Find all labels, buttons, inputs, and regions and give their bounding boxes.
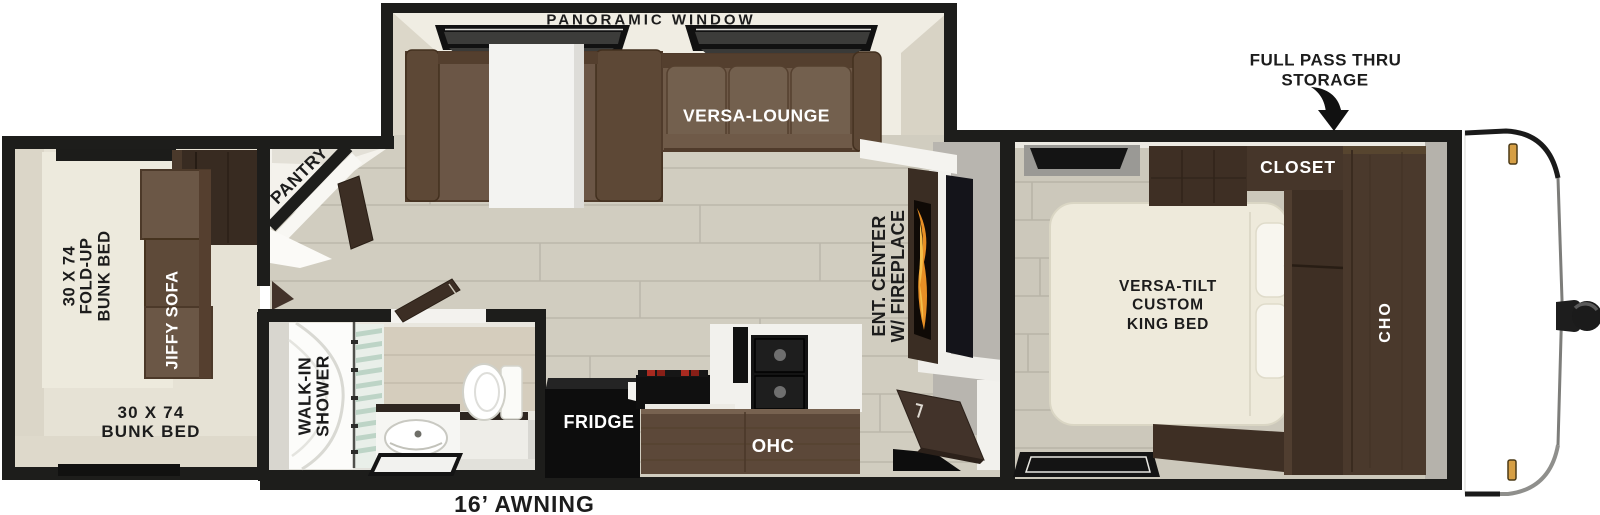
svg-text:BUNK BED: BUNK BED bbox=[101, 422, 200, 441]
svg-text:FULL PASS THRU: FULL PASS THRU bbox=[1250, 51, 1402, 70]
svg-text:PANORAMIC WINDOW: PANORAMIC WINDOW bbox=[546, 12, 755, 29]
svg-text:SHOWER: SHOWER bbox=[313, 355, 333, 437]
svg-text:WALK-IN: WALK-IN bbox=[295, 357, 315, 435]
svg-text:KING BED: KING BED bbox=[1127, 316, 1209, 333]
svg-text:FOLD-UP: FOLD-UP bbox=[77, 238, 95, 315]
svg-text:30 X 74: 30 X 74 bbox=[117, 403, 184, 422]
svg-text:16’ AWNING: 16’ AWNING bbox=[454, 491, 595, 515]
svg-text:BUNK BED: BUNK BED bbox=[95, 230, 113, 321]
svg-text:OHC: OHC bbox=[752, 435, 795, 456]
svg-text:VERSA-TILT: VERSA-TILT bbox=[1119, 278, 1217, 295]
svg-text:W/ FIREPLACE: W/ FIREPLACE bbox=[888, 210, 908, 343]
svg-text:ENT. CENTER: ENT. CENTER bbox=[869, 215, 889, 336]
svg-text:VERSA-LOUNGE: VERSA-LOUNGE bbox=[683, 106, 830, 126]
svg-text:CHO: CHO bbox=[1377, 301, 1394, 343]
svg-text:CLOSET: CLOSET bbox=[1260, 157, 1336, 177]
svg-text:CUSTOM: CUSTOM bbox=[1132, 297, 1204, 314]
svg-text:JIFFY SOFA: JIFFY SOFA bbox=[163, 270, 181, 369]
svg-text:STORAGE: STORAGE bbox=[1281, 71, 1368, 90]
svg-text:FRIDGE: FRIDGE bbox=[563, 412, 634, 432]
svg-text:30 X 74: 30 X 74 bbox=[60, 245, 78, 306]
